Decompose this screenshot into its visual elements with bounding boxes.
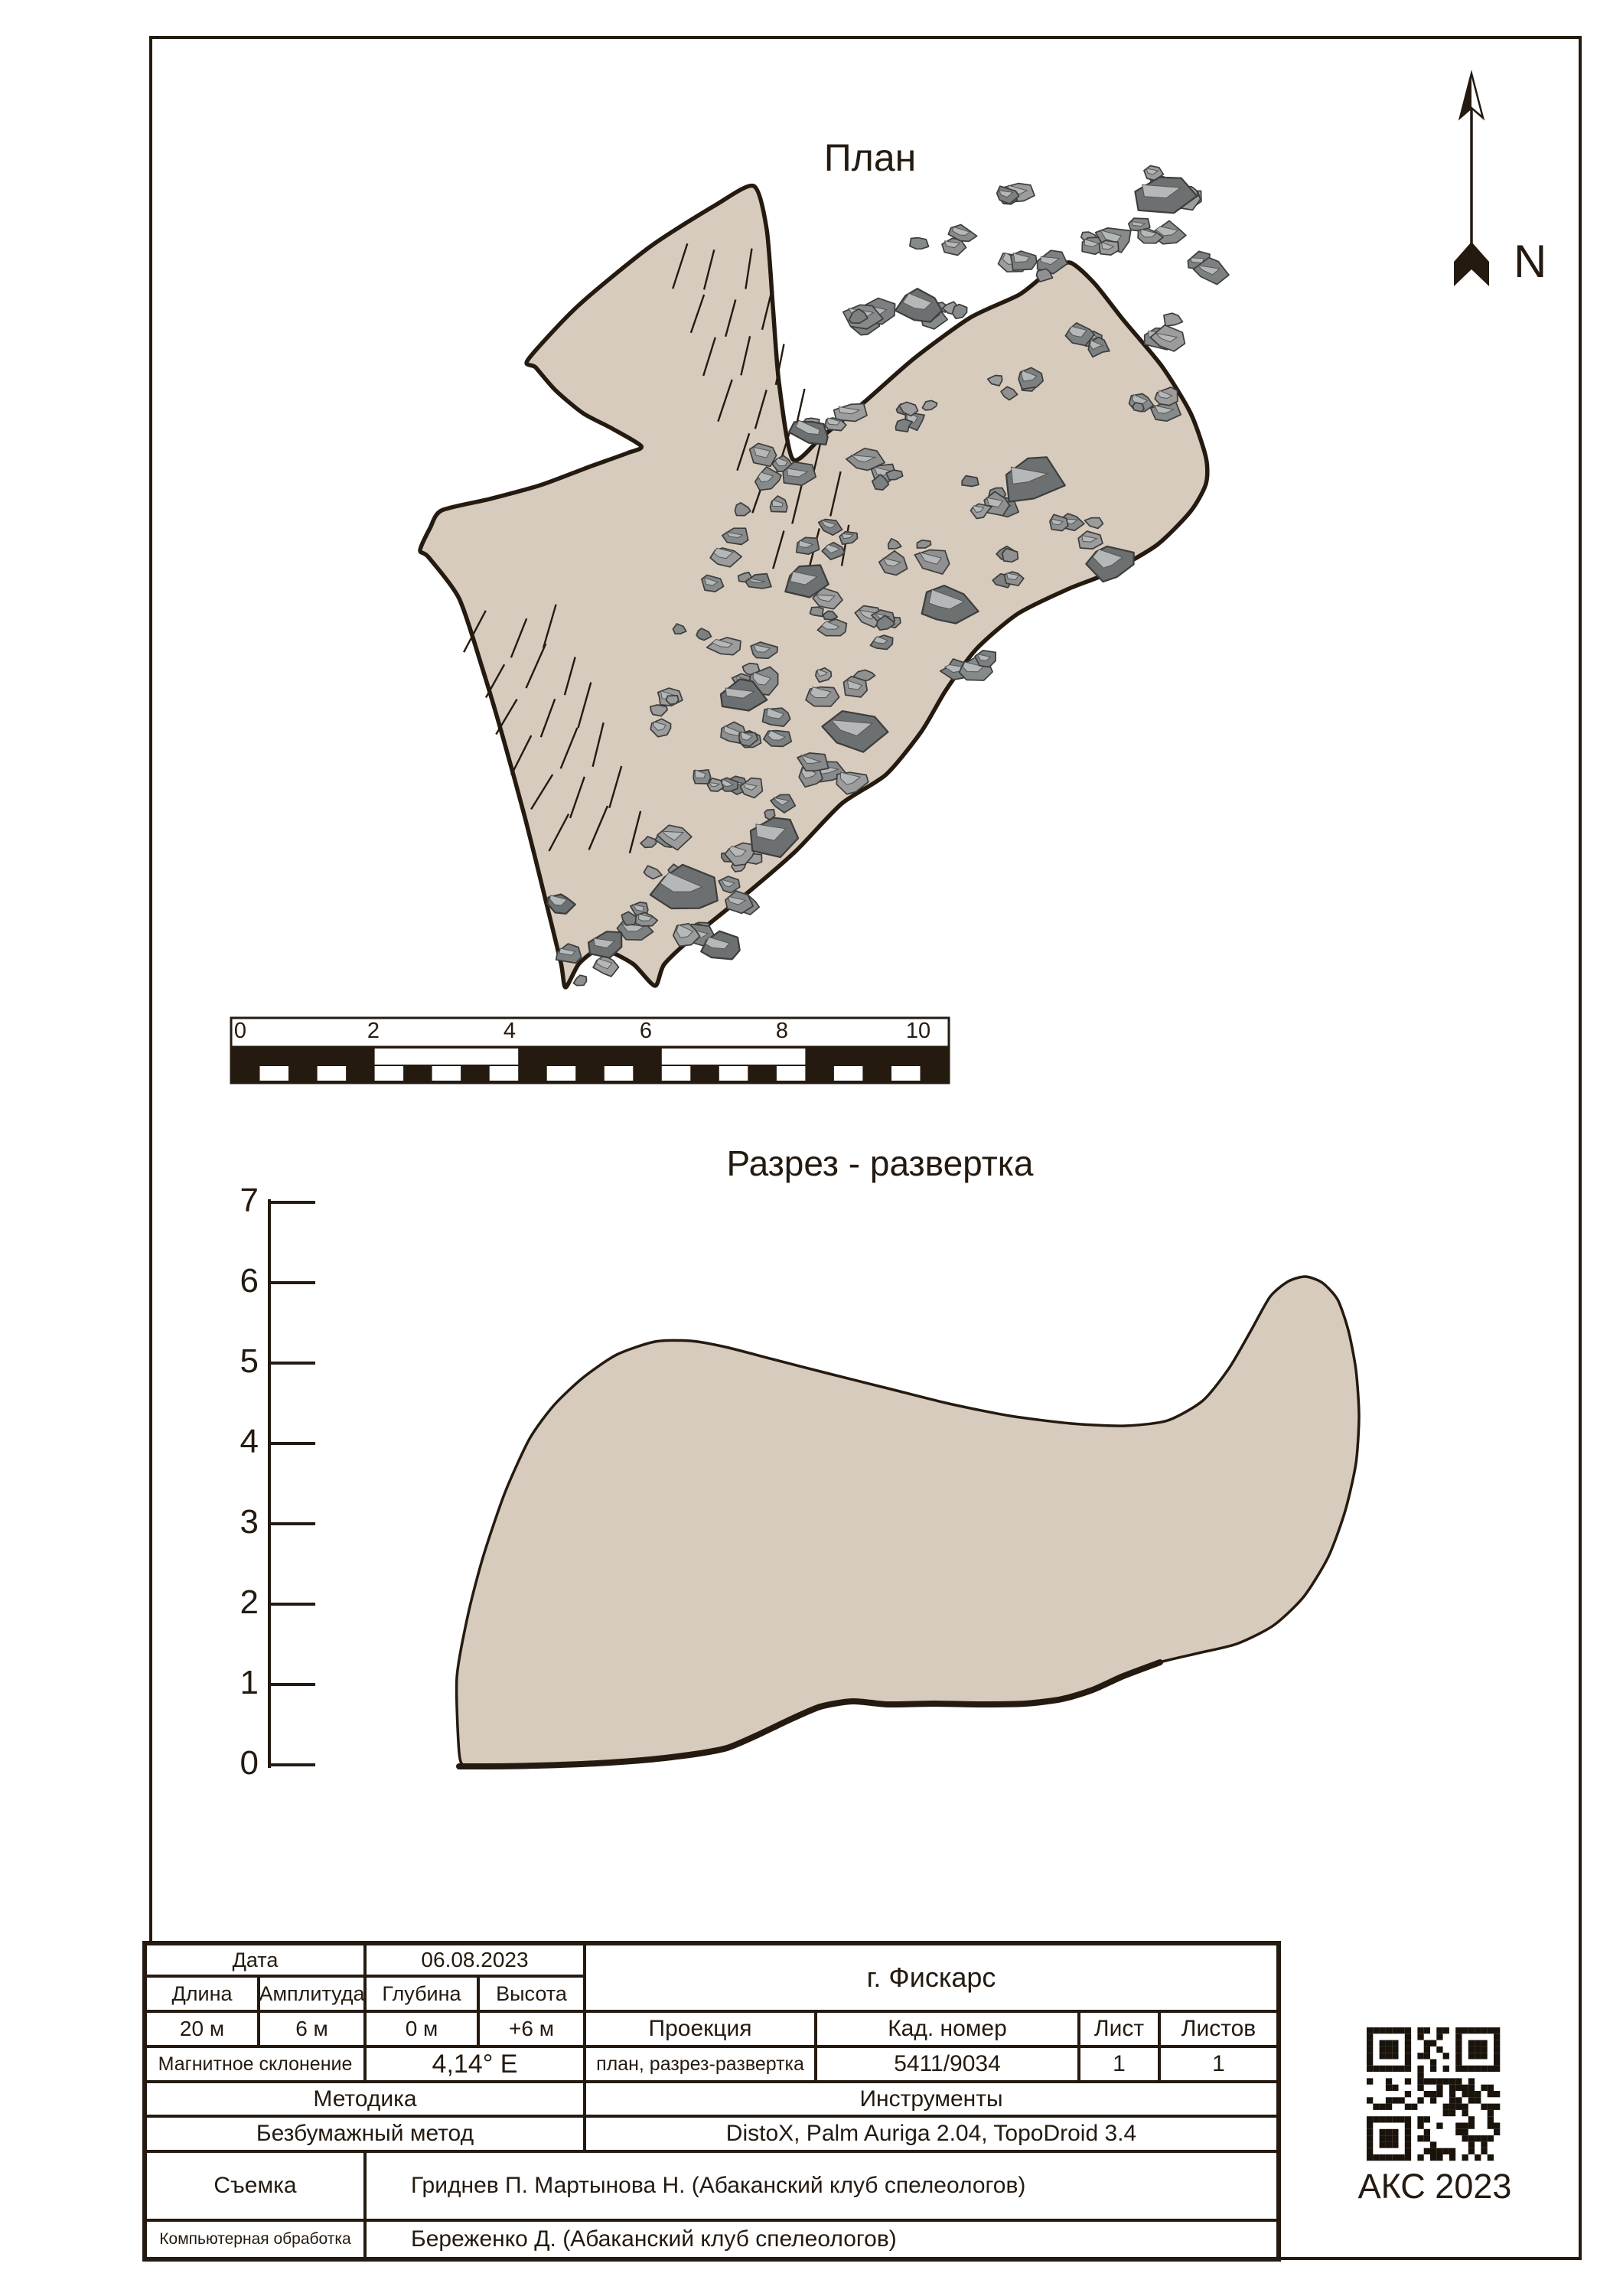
axis-tick-label: 1: [210, 1665, 259, 1701]
cell-length-value: 20 м: [145, 2011, 259, 2047]
cell-cad-label: Кад. номер: [816, 2011, 1079, 2047]
rock: [666, 696, 679, 705]
cell-amplitude-label: Амплитуда: [259, 1976, 365, 2011]
rock: [953, 305, 967, 319]
rock: [962, 476, 979, 487]
info-table: Дата 06.08.2023 г. Фискарс Длина Амплиту…: [142, 1941, 1281, 2262]
rock: [810, 607, 824, 616]
cell-height-label: Высота: [478, 1976, 585, 2011]
cell-amplitude-value: 6 м: [259, 2011, 365, 2047]
cell-projection-value: план, разрез-развертка: [585, 2047, 816, 2082]
axis-tick-label: 0: [210, 1746, 259, 1781]
rock: [1133, 403, 1144, 412]
cell-sheet-value: 1: [1079, 2047, 1159, 2082]
scale-label: 4: [485, 1019, 534, 1042]
section-title: Разрез - развертка: [689, 1145, 1071, 1182]
section-axis: [269, 1199, 315, 1768]
cell-method-label: Методика: [145, 2082, 585, 2116]
axis-tick-label: 6: [210, 1264, 259, 1299]
cell-magnetic-value: 4,14° E: [365, 2047, 585, 2082]
cell-length-label: Длина: [145, 1976, 259, 2011]
cell-height-value: +6 м: [478, 2011, 585, 2047]
cell-magnetic-label: Магнитное склонение: [145, 2047, 365, 2082]
axis-tick-label: 3: [210, 1505, 259, 1540]
rock: [910, 238, 929, 249]
axis-tick-label: 4: [210, 1424, 259, 1459]
cell-date-label: Дата: [145, 1944, 365, 1976]
cave-section: [457, 1277, 1359, 1767]
north-label: N: [1514, 237, 1546, 285]
scale-bar: [231, 1018, 949, 1083]
cell-sheets-value: 1: [1159, 2047, 1278, 2082]
axis-tick-label: 2: [210, 1585, 259, 1620]
stamp-label: АКС 2023: [1328, 2168, 1542, 2204]
scale-label: 6: [621, 1019, 670, 1042]
rock: [574, 975, 587, 986]
axis-tick-label: 7: [210, 1183, 259, 1218]
cell-survey-value: Гриднев П. Мартынова Н. (Абаканский клуб…: [365, 2151, 1278, 2220]
cell-processing-label: Компьютерная обработка: [145, 2220, 365, 2258]
cell-survey-label: Съемка: [145, 2151, 365, 2220]
cell-sheets-label: Листов: [1159, 2011, 1278, 2047]
rock: [1164, 313, 1182, 326]
cell-instruments-value: DistoX, Palm Auriga 2.04, TopoDroid 3.4: [585, 2116, 1278, 2151]
cell-method-value: Безбумажный метод: [145, 2116, 585, 2151]
cell-processing-value: Береженко Д. (Абаканский клуб спелеолого…: [365, 2220, 1278, 2258]
scale-label: 0: [216, 1019, 265, 1042]
survey-sheet: План Разрез - развертка N АКС 2023 Дата …: [0, 0, 1623, 2296]
scale-label: 8: [758, 1019, 807, 1042]
cell-projection-label: Проекция: [585, 2011, 816, 2047]
plan-title: План: [755, 138, 985, 178]
axis-tick-label: 5: [210, 1344, 259, 1379]
north-arrow-icon: [1454, 73, 1489, 286]
qr-code: [1367, 2027, 1500, 2161]
cell-depth-value: 0 м: [365, 2011, 478, 2047]
cell-date-value: 06.08.2023: [365, 1944, 585, 1976]
cell-instruments-label: Инструменты: [585, 2082, 1278, 2116]
cell-cave-name: г. Фискарс: [585, 1944, 1278, 2011]
cell-cad-value: 5411/9034: [816, 2047, 1079, 2082]
scale-label: 2: [349, 1019, 398, 1042]
scale-label: 10: [894, 1019, 943, 1042]
cell-depth-label: Глубина: [365, 1976, 478, 2011]
section-outline: [457, 1277, 1359, 1767]
cell-sheet-label: Лист: [1079, 2011, 1159, 2047]
